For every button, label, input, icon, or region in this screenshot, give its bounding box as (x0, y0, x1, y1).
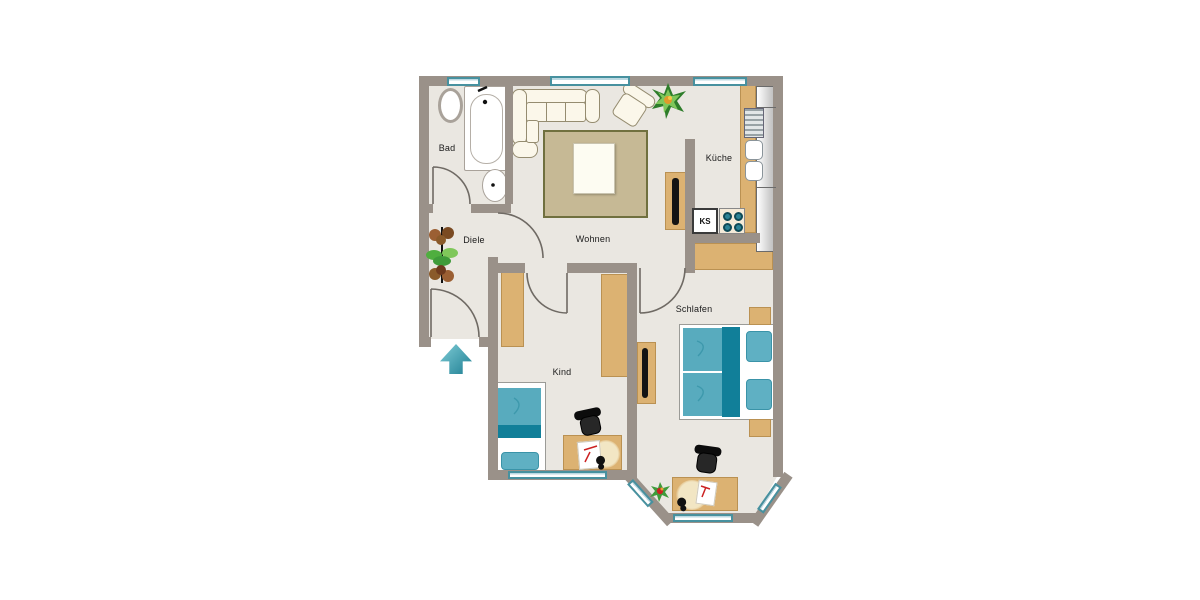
wall-kueche-south (695, 233, 760, 243)
bathtub-basin (470, 94, 503, 164)
nightstand (749, 419, 771, 437)
wall-bad-east (505, 86, 513, 204)
wall-hall-kind-west (488, 257, 498, 480)
kitchen-drainer (744, 108, 764, 138)
window-kind (508, 471, 607, 479)
wardrobe-kind-left (501, 272, 524, 347)
wall-entry-a (419, 337, 431, 347)
fridge-label: KS (699, 217, 710, 226)
tv-schlafen (642, 348, 648, 398)
sofa-seats (526, 102, 586, 122)
kitchen-sink-basin (745, 140, 763, 160)
wall-bad-south-b (471, 204, 511, 213)
fridge: KS (692, 208, 718, 234)
window-kueche (693, 77, 747, 86)
entrance-arrow-icon (440, 344, 472, 374)
room-label-bad: Bad (427, 143, 467, 153)
window-wohnen (550, 76, 630, 86)
double-bed-mattress (683, 328, 722, 371)
room-label-wohnen: Wohnen (571, 234, 615, 244)
desk-paper (695, 480, 717, 506)
room-label-kueche: Küche (697, 153, 741, 163)
wall-kueche-west (685, 139, 695, 273)
toilet (438, 88, 463, 123)
room-label-diele: Diele (454, 235, 494, 245)
wall-bad-south-a (419, 204, 433, 213)
kitchen-sink-basin (745, 161, 763, 181)
sofa-armrest-bottom (512, 141, 538, 158)
single-bed-blanket-edge (497, 425, 541, 438)
stove (719, 208, 745, 234)
tv-wohnen (672, 178, 679, 225)
coffee-table (573, 143, 615, 194)
room-label-schlafen: Schlafen (670, 304, 718, 314)
wardrobe-kind-right (601, 274, 628, 377)
wall-right (773, 76, 783, 477)
pillow (746, 331, 772, 362)
double-bed-mattress (683, 373, 722, 416)
room-label-kind: Kind (544, 367, 580, 377)
window-bad (447, 77, 480, 86)
double-bed-blanket-edge (722, 327, 740, 417)
nightstand (749, 307, 771, 325)
single-bed-pillow (501, 452, 539, 470)
pillow (746, 379, 772, 410)
sofa-armrest-right (585, 89, 600, 123)
wall-wohnen-south-a (498, 263, 525, 273)
cabinet-divider (756, 187, 776, 188)
wall-kind-schlafen-divider (627, 263, 637, 480)
window-bay-bottom (673, 514, 733, 522)
sofa-back-left (512, 89, 527, 145)
office-chair-schlafen (690, 444, 724, 478)
sofa-seat-left (526, 120, 539, 143)
single-bed-blanket (497, 388, 541, 425)
wall-entry-b (479, 337, 498, 347)
floorplan-canvas: KS (0, 0, 1200, 600)
